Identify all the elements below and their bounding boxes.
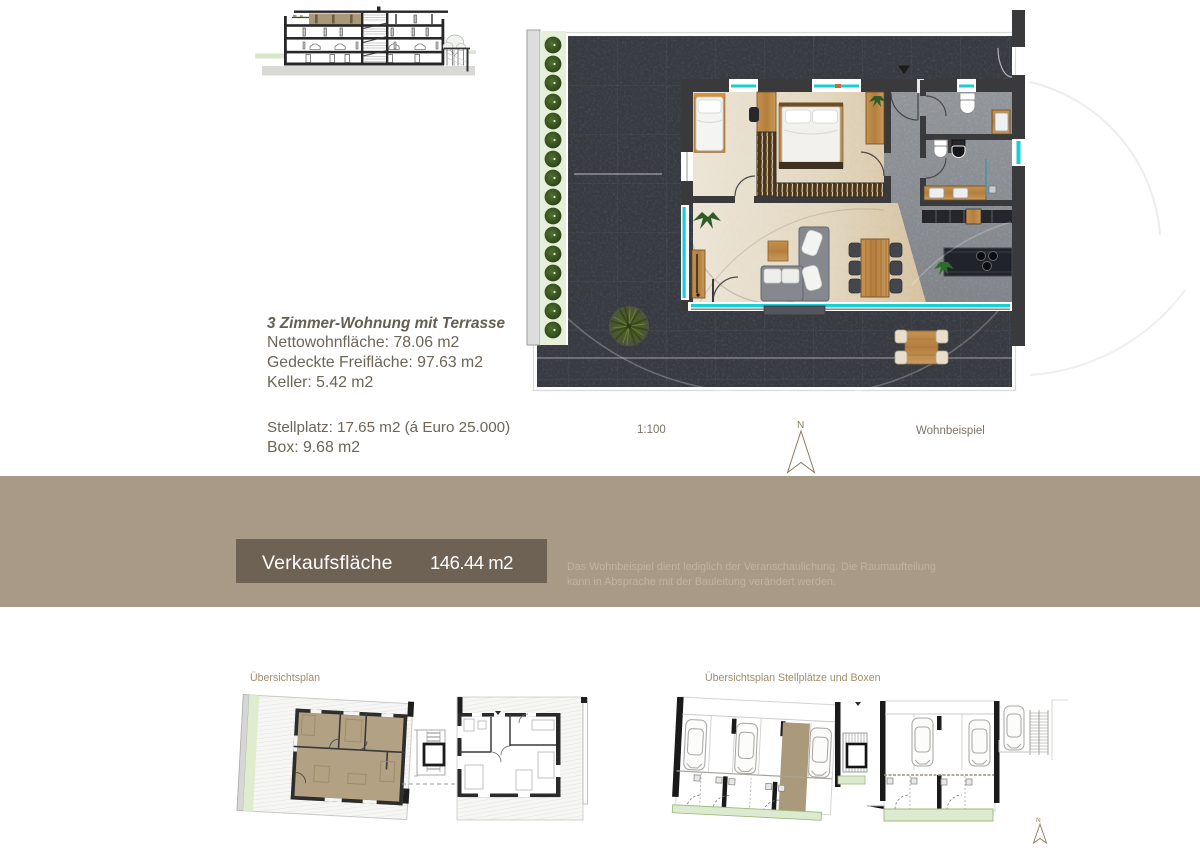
svg-text:146.44 m2: 146.44 m2: [430, 552, 513, 573]
svg-text:Stellplatz: 17.65 m2 (á Euro 2: Stellplatz: 17.65 m2 (á Euro 25.000): [267, 419, 510, 436]
svg-text:Wohnbeispiel: Wohnbeispiel: [916, 425, 985, 437]
svg-text:Verkaufsfläche: Verkaufsfläche: [262, 552, 393, 574]
svg-text:Das Wohnbeispiel dient ledigli: Das Wohnbeispiel dient lediglich der Ver…: [567, 561, 936, 573]
svg-text:N: N: [1036, 817, 1041, 824]
svg-text:Keller: 5.42 m2: Keller: 5.42 m2: [267, 374, 373, 391]
svg-text:1:100: 1:100: [637, 424, 666, 436]
svg-text:Nettowohnfläche: 78.06 m2: Nettowohnfläche: 78.06 m2: [267, 334, 459, 351]
svg-text:N: N: [797, 420, 804, 431]
svg-text:Übersichtsplan Stellplätze und: Übersichtsplan Stellplätze und Boxen: [705, 672, 881, 684]
svg-text:kann in Absprache mit der Baul: kann in Absprache mit der Bauleitung ver…: [567, 576, 836, 588]
svg-text:Box: 9.68 m2: Box: 9.68 m2: [267, 439, 360, 456]
svg-text:Gedeckte Freifläche: 97.63 m2: Gedeckte Freifläche: 97.63 m2: [267, 354, 483, 371]
svg-text:Übersichtsplan: Übersichtsplan: [250, 672, 320, 684]
svg-text:3 Zimmer-Wohnung mit Terrasse: 3 Zimmer-Wohnung mit Terrasse: [267, 315, 505, 332]
